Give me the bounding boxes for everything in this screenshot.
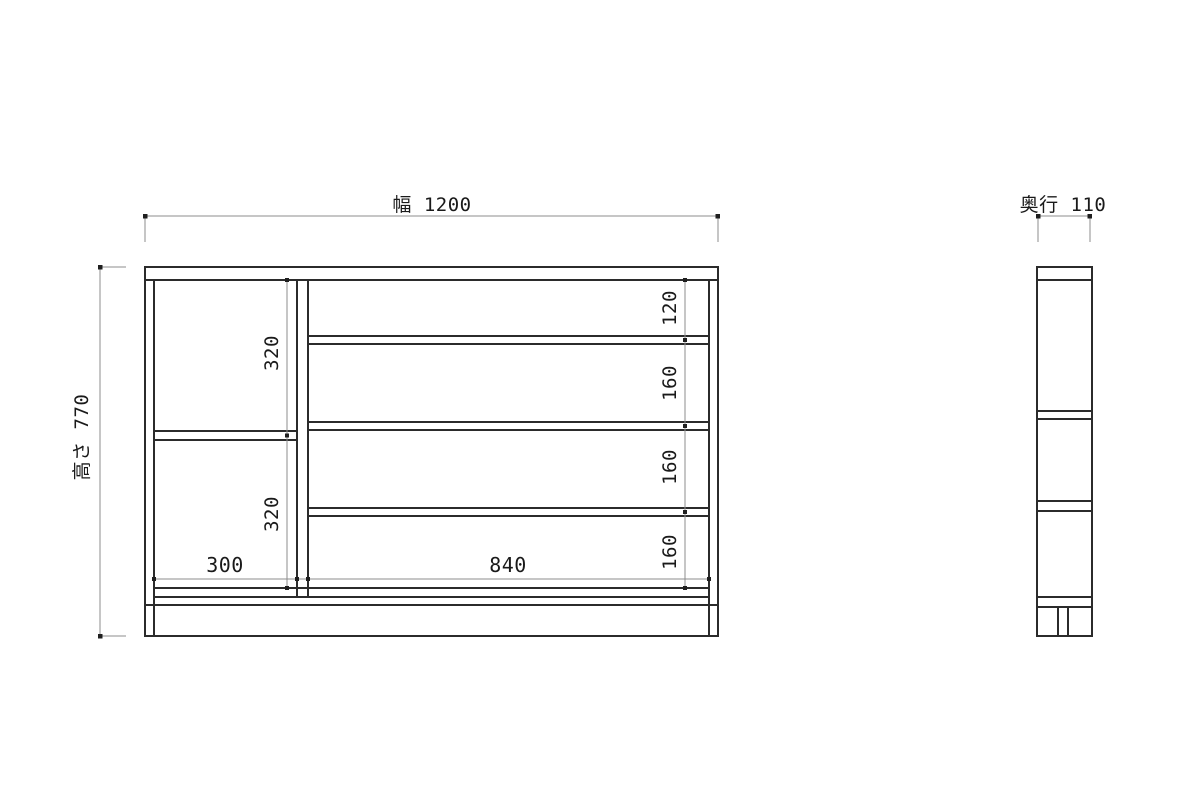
height-dimension-label: 高さ 770 bbox=[71, 394, 93, 481]
shelf-dimension-drawing: 幅 1200 高さ 770 320 320 120 160 160 160 bbox=[0, 0, 1200, 800]
right-column-tick-3 bbox=[683, 424, 687, 428]
technical-drawing-page: 幅 1200 高さ 770 320 320 120 160 160 160 bbox=[0, 0, 1200, 800]
right-column-tick-1 bbox=[683, 278, 687, 282]
right-column-tick-2 bbox=[683, 338, 687, 342]
right-width-label: 840 bbox=[489, 553, 527, 577]
left-lower-height-label: 320 bbox=[261, 496, 283, 532]
front-width-dimension: 幅 1200 bbox=[143, 194, 720, 242]
width-tick-right bbox=[716, 214, 721, 219]
front-outer-carcass bbox=[145, 267, 718, 636]
front-right-column-dimension: 120 160 160 160 bbox=[659, 278, 687, 590]
front-view bbox=[145, 267, 718, 636]
right-column-tick-4 bbox=[683, 510, 687, 514]
side-depth-dimension: 奥行 110 bbox=[1020, 194, 1107, 242]
right-row2-height-label: 160 bbox=[659, 365, 681, 401]
height-tick-bottom bbox=[98, 634, 103, 639]
front-bottom-dimension: 300 840 bbox=[152, 553, 711, 581]
bottom-tick-right bbox=[707, 577, 711, 581]
width-tick-left bbox=[143, 214, 148, 219]
left-column-tick-middle bbox=[285, 434, 289, 438]
depth-dimension-label: 奥行 110 bbox=[1020, 194, 1107, 216]
right-column-tick-5 bbox=[683, 586, 687, 590]
width-dimension-label: 幅 1200 bbox=[392, 194, 471, 216]
left-column-tick-bottom bbox=[285, 586, 289, 590]
left-width-label: 300 bbox=[206, 553, 244, 577]
height-tick-top bbox=[98, 265, 103, 270]
bottom-tick-partition-right bbox=[306, 577, 310, 581]
front-left-column-dimension: 320 320 bbox=[261, 278, 289, 590]
side-outer-carcass bbox=[1037, 267, 1092, 636]
front-height-dimension: 高さ 770 bbox=[71, 265, 126, 639]
right-row3-height-label: 160 bbox=[659, 449, 681, 485]
left-upper-height-label: 320 bbox=[261, 335, 283, 371]
side-view bbox=[1037, 267, 1092, 636]
right-row4-height-label: 160 bbox=[659, 534, 681, 570]
right-row1-height-label: 120 bbox=[659, 290, 681, 326]
bottom-tick-partition-left bbox=[295, 577, 299, 581]
bottom-tick-left bbox=[152, 577, 156, 581]
left-column-tick-top bbox=[285, 278, 289, 282]
